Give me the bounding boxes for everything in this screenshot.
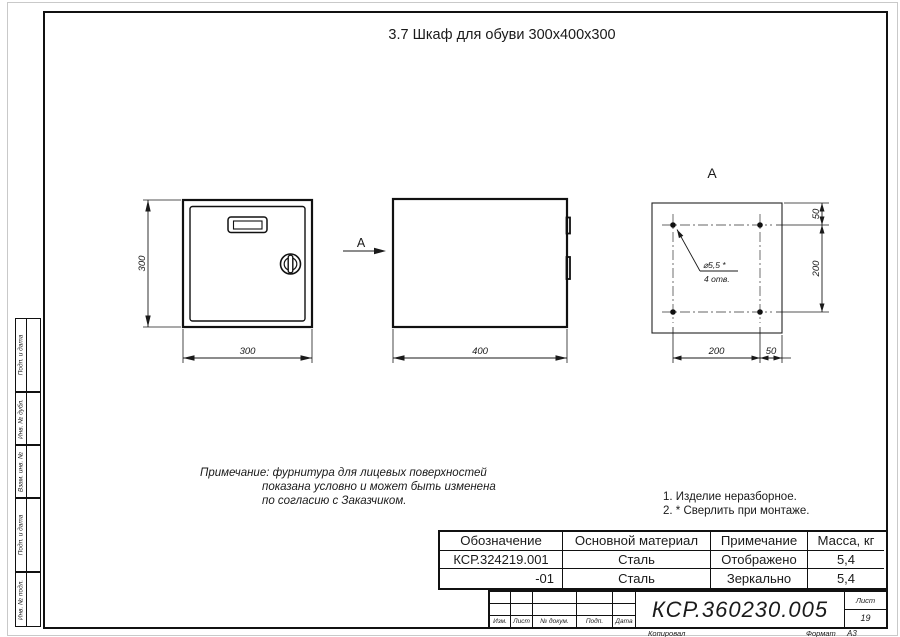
table-cell: 5,4 — [808, 569, 884, 588]
col-header-mass: Масса, кг — [808, 532, 884, 551]
table-cell: -01 — [440, 569, 563, 588]
format-label: Формат — [806, 629, 836, 637]
table-cell: Отображено — [711, 551, 808, 570]
tb-label-izm: Изм. — [490, 615, 510, 627]
front-height-dimension — [143, 200, 181, 327]
hole-callout-diameter: ⌀5,5 * — [703, 260, 726, 270]
tb-label-docnum: № докум. — [533, 615, 576, 627]
tech-note-line: 1. Изделие неразборное. — [663, 490, 809, 504]
table-cell: Зеркально — [711, 569, 808, 588]
note-line: Примечание: фурнитура для лицевых поверх… — [200, 466, 496, 480]
hinge-top — [567, 218, 571, 234]
table-cell: Сталь — [563, 569, 711, 588]
table-cell: 5,4 — [808, 551, 884, 570]
sheet-number: 19 — [845, 609, 886, 627]
side-view: А 400 — [343, 199, 570, 363]
technical-notes: 1. Изделие неразборное. 2. * Сверлить пр… — [663, 490, 809, 518]
door-lock — [281, 254, 301, 274]
table-cell: КСР.324219.001 — [440, 551, 563, 570]
note-line: по согласию с Заказчиком. — [200, 494, 496, 508]
tb-label-data: Дата — [613, 615, 635, 627]
hole-callout-count: 4 отв. — [704, 274, 730, 284]
col-header-note: Примечание — [711, 532, 808, 551]
title-block: Изм. Лист № докум. Подп. Дата КСР.360230… — [488, 590, 888, 629]
tech-note-line: 2. * Сверлить при монтаже. — [663, 504, 809, 518]
sheet-cell: Лист 19 — [844, 592, 886, 627]
front-view: 300 300 — [137, 200, 312, 363]
back-view-label: А — [707, 165, 717, 181]
copied-label: Копировал — [648, 629, 685, 637]
back-hole-spacing-h: 200 — [708, 346, 726, 357]
document-number: КСР.360230.005 — [636, 592, 844, 627]
tb-label-list: Лист — [511, 615, 532, 627]
table-cell: Сталь — [563, 551, 711, 570]
drawing-sheet: 3.7 Шкаф для обуви 300х400х300 Подп. и д… — [0, 0, 900, 637]
format-value: А3 — [847, 629, 857, 637]
front-height-value: 300 — [137, 255, 148, 272]
nameplate-holder — [228, 217, 267, 233]
front-width-value: 300 — [240, 346, 257, 357]
tb-label-podp: Подп. — [577, 615, 612, 627]
sheet-label: Лист — [845, 592, 886, 610]
side-width-value: 400 — [472, 346, 489, 357]
parts-table: Обозначение Основной материал Примечание… — [438, 530, 888, 590]
back-bottom-dimensions — [673, 327, 791, 363]
back-view: А 50 200 — [652, 165, 829, 363]
back-edge-offset-h: 50 — [766, 346, 777, 357]
col-header-designation: Обозначение — [440, 532, 563, 551]
note-block: Примечание: фурнитура для лицевых поверх… — [200, 466, 496, 508]
back-edge-offset-v: 50 — [811, 208, 822, 219]
hinge-bottom — [567, 257, 571, 279]
col-header-material: Основной материал — [563, 532, 711, 551]
view-arrow-label: А — [357, 236, 366, 250]
note-line: показана условно и может быть изменена — [200, 480, 496, 494]
back-hole-spacing-v: 200 — [811, 260, 822, 278]
